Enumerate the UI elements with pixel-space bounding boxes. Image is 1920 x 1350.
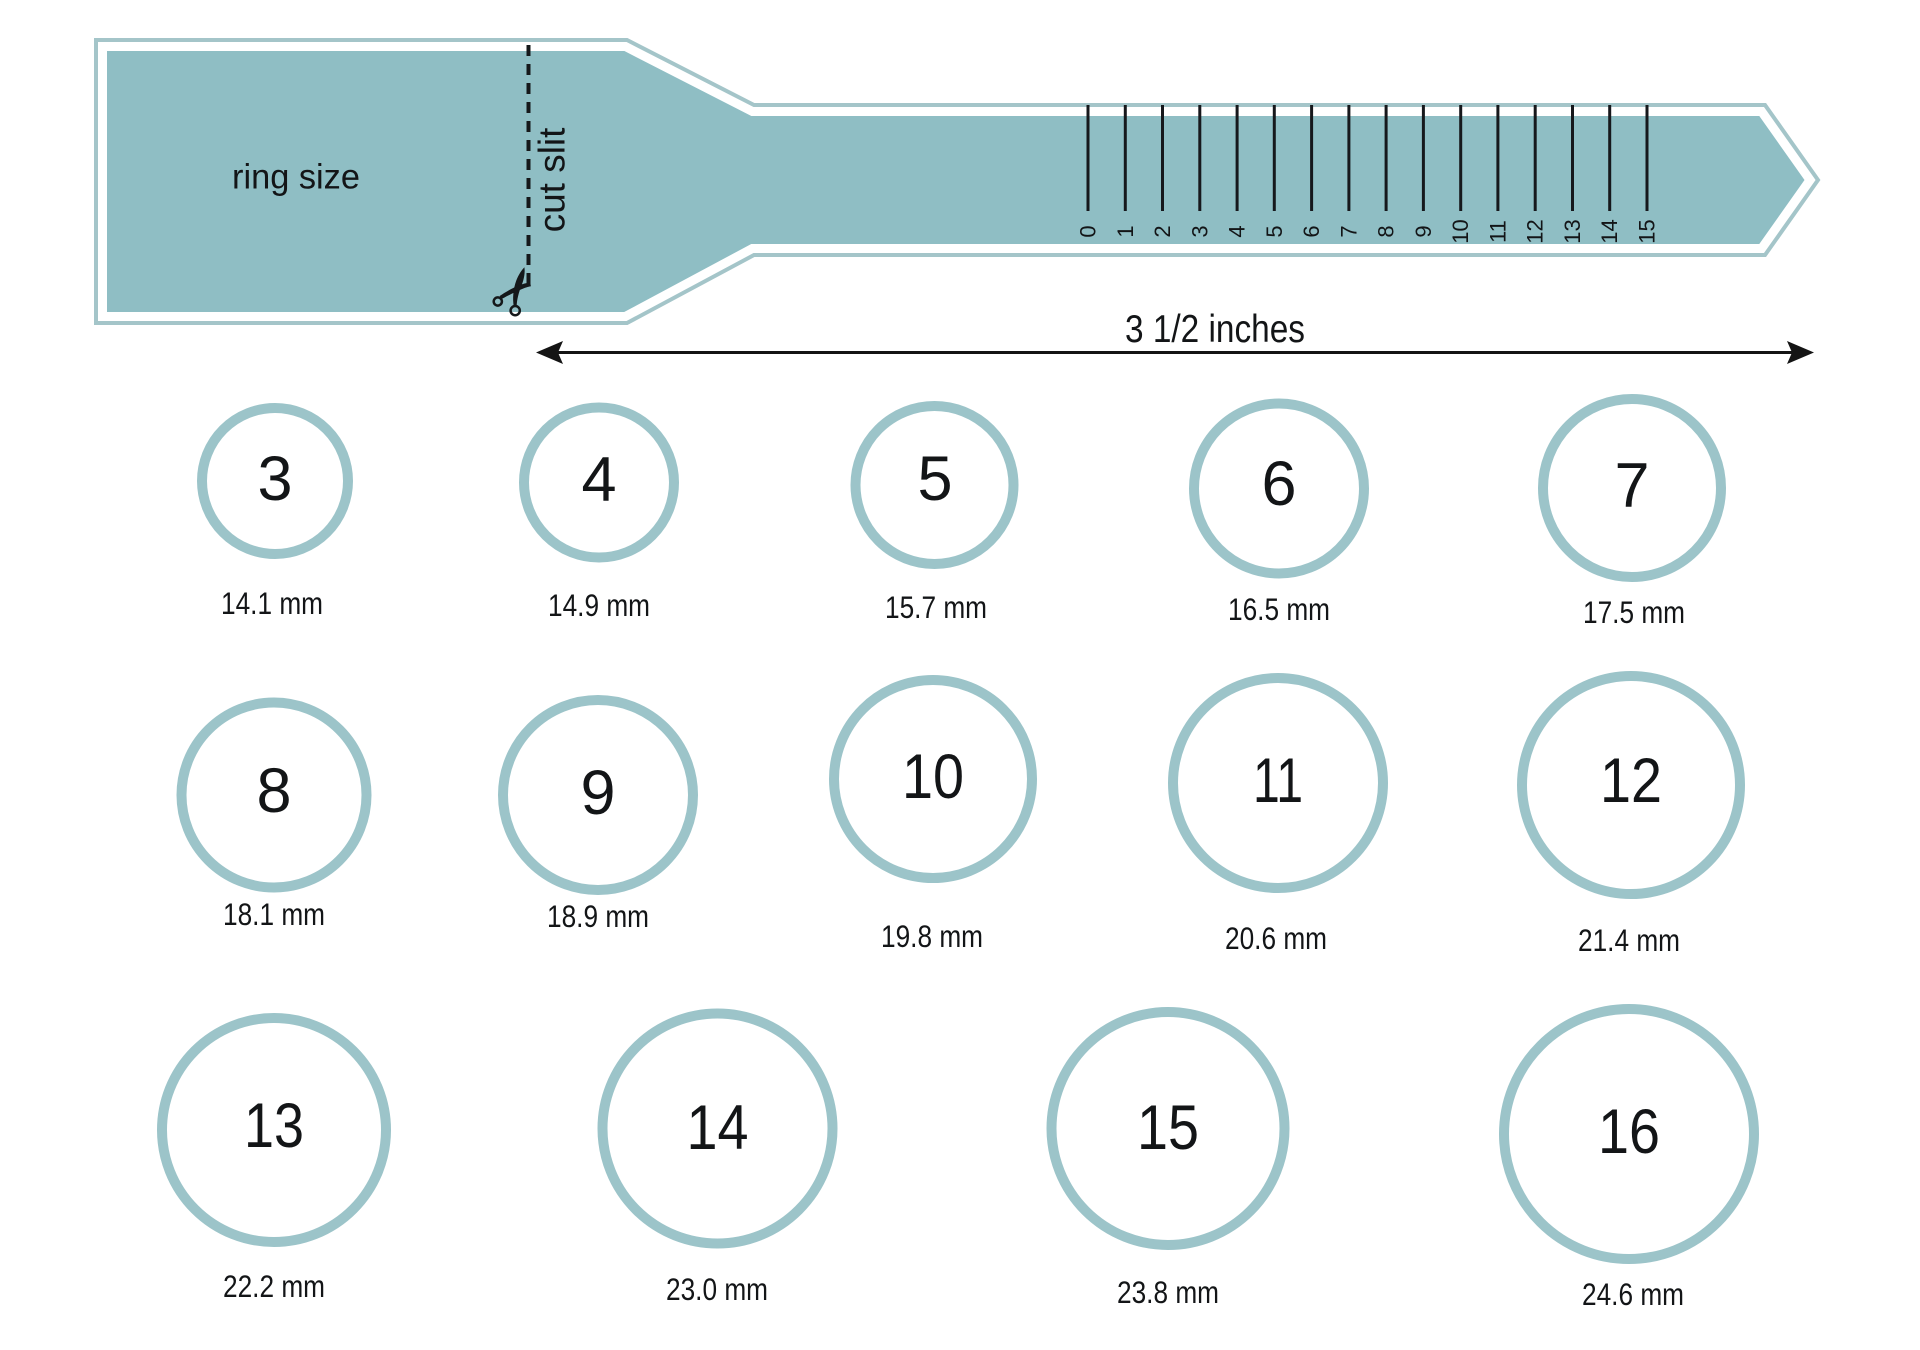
svg-text:13: 13	[244, 1091, 304, 1161]
svg-text:8: 8	[1374, 225, 1399, 237]
svg-text:12: 12	[1523, 219, 1548, 243]
svg-text:10: 10	[1448, 219, 1473, 243]
svg-text:13: 13	[1560, 219, 1585, 243]
svg-text:3 1/2 inches: 3 1/2 inches	[1125, 308, 1305, 351]
svg-text:15: 15	[1635, 219, 1660, 243]
svg-text:18.1 mm: 18.1 mm	[223, 896, 325, 932]
svg-text:24.6 mm: 24.6 mm	[1582, 1276, 1684, 1312]
svg-text:1: 1	[1113, 225, 1138, 237]
svg-text:16.5 mm: 16.5 mm	[1228, 591, 1330, 627]
svg-text:15.7 mm: 15.7 mm	[885, 589, 987, 625]
svg-text:9: 9	[580, 758, 615, 828]
svg-text:22.2 mm: 22.2 mm	[223, 1268, 325, 1304]
svg-text:3: 3	[257, 444, 292, 514]
svg-text:8: 8	[256, 756, 291, 826]
svg-text:14.9 mm: 14.9 mm	[548, 587, 650, 623]
svg-text:cut slit: cut slit	[532, 127, 573, 233]
svg-text:2: 2	[1150, 225, 1175, 237]
svg-text:10: 10	[902, 742, 964, 812]
svg-text:5: 5	[917, 444, 952, 514]
svg-text:21.4 mm: 21.4 mm	[1578, 922, 1680, 958]
svg-text:11: 11	[1253, 746, 1303, 816]
svg-text:0: 0	[1076, 225, 1101, 237]
svg-text:11: 11	[1485, 220, 1510, 243]
svg-text:6: 6	[1299, 225, 1324, 237]
svg-text:17.5 mm: 17.5 mm	[1583, 594, 1685, 630]
svg-text:15: 15	[1137, 1093, 1199, 1163]
svg-text:6: 6	[1261, 449, 1296, 519]
svg-text:9: 9	[1411, 225, 1436, 237]
svg-text:4: 4	[581, 445, 616, 515]
svg-text:20.6 mm: 20.6 mm	[1225, 920, 1327, 956]
svg-text:7: 7	[1336, 225, 1361, 237]
svg-text:ring size: ring size	[232, 157, 360, 197]
svg-text:5: 5	[1262, 225, 1287, 237]
svg-text:14.1 mm: 14.1 mm	[221, 585, 323, 621]
svg-text:3: 3	[1187, 225, 1212, 237]
svg-text:7: 7	[1614, 451, 1649, 521]
svg-text:18.9 mm: 18.9 mm	[547, 898, 649, 934]
svg-text:4: 4	[1225, 225, 1250, 237]
svg-text:23.8 mm: 23.8 mm	[1117, 1274, 1219, 1310]
svg-text:19.8 mm: 19.8 mm	[881, 918, 983, 954]
svg-text:14: 14	[687, 1093, 749, 1163]
svg-text:16: 16	[1598, 1097, 1660, 1167]
svg-text:14: 14	[1597, 219, 1622, 243]
svg-text:12: 12	[1600, 746, 1662, 816]
svg-text:23.0 mm: 23.0 mm	[666, 1271, 768, 1307]
